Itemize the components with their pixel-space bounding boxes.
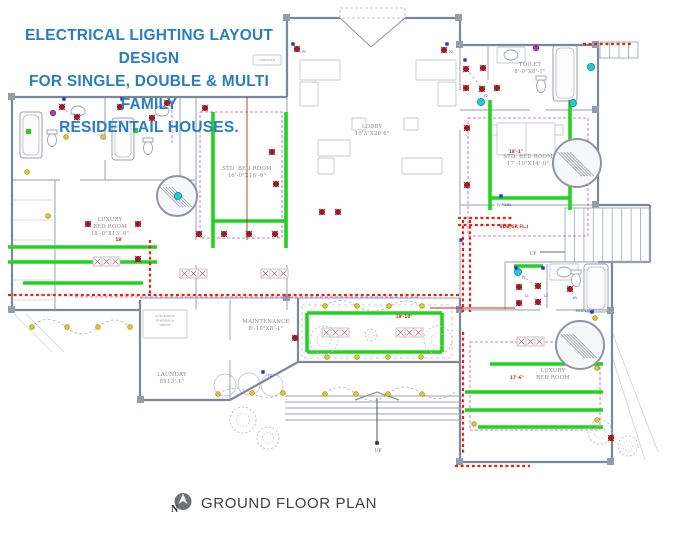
small-label: STACKABLE [155, 314, 175, 318]
ceiling-light [319, 209, 324, 214]
exhaust-fan [569, 99, 576, 106]
garden-light [128, 325, 133, 330]
wiring-curve [466, 69, 483, 89]
plant [365, 329, 377, 341]
garden-light [420, 392, 425, 397]
garden-light [65, 325, 70, 330]
room-label: BED ROOM [536, 375, 570, 381]
ceiling-fan [556, 321, 604, 369]
bathtub [553, 45, 577, 101]
title-line-2: FOR SINGLE, DOUBLE & MULTI FAMILY [0, 70, 298, 116]
circuit-tag: WL [573, 296, 578, 300]
furniture [318, 158, 334, 174]
plant [257, 427, 279, 449]
room-label: 19'3"X20'4" [355, 131, 390, 137]
circuit-tag: L1 [525, 294, 529, 298]
garden-light [386, 392, 391, 397]
plant-inner [237, 414, 250, 427]
wall-pillar [592, 106, 599, 113]
circuit-tag: F4 [268, 374, 272, 378]
circuit-tag: P2 [449, 50, 453, 54]
dimension-label: 18'-1" [509, 149, 523, 154]
screenshot-canvas: LUXURYBED ROOM18'-0"X13'-0"STD. BED ROOM… [0, 0, 680, 533]
garden-light [420, 304, 425, 309]
garden-light [595, 366, 600, 371]
garden-light [354, 392, 359, 397]
wall-pillar [607, 458, 614, 465]
ceiling-light [335, 209, 340, 214]
garden-light [355, 355, 360, 360]
switch [514, 266, 517, 269]
room-label: LUXURY [541, 368, 566, 374]
exhaust-fan [174, 192, 181, 199]
room-label: 17'-10"X14'-0" [507, 161, 549, 167]
circuit-tag: L2 [544, 294, 548, 298]
room-label: 16'-0"X16'-6" [228, 173, 267, 179]
small-label: DRYER [159, 323, 171, 327]
ceiling-light [464, 125, 469, 130]
room-label: STD. BED ROOM [222, 166, 272, 172]
room-label: 8X13'-1" [160, 379, 185, 385]
bathtub [584, 264, 608, 312]
wall-pillar [137, 396, 144, 403]
ceiling-light [135, 256, 140, 261]
garden-light [323, 304, 328, 309]
wall-pillar [456, 41, 463, 48]
sink [504, 50, 518, 60]
garden-light [325, 355, 330, 360]
furniture [300, 82, 318, 106]
staircase [565, 208, 650, 262]
room-label: LUXURY [98, 217, 123, 223]
wall-pillar [592, 201, 599, 208]
switch [459, 238, 462, 241]
garden-light [46, 214, 51, 219]
entry-door-swing [371, 18, 405, 47]
ceiling-light [221, 231, 226, 236]
ceiling-light [85, 221, 90, 226]
ceiling-light [535, 283, 540, 288]
ceiling-light [479, 86, 484, 91]
up-arrow-base [375, 441, 379, 445]
ceiling-light [196, 231, 201, 236]
toilet [537, 80, 546, 93]
switch [463, 58, 466, 61]
title-line-3: RESIDENTAIL HOUSES. [0, 116, 298, 139]
wall-pillar [455, 14, 462, 21]
ceiling-light [464, 182, 469, 187]
garden-light [593, 316, 598, 321]
switch [445, 42, 448, 45]
toilet-tank [571, 270, 581, 274]
wall-pillar [283, 14, 290, 21]
garden-light [25, 170, 30, 175]
ceiling-light [463, 66, 468, 71]
ceiling-light [269, 149, 274, 154]
circuit-tag: ROSE LIGHT [576, 309, 595, 313]
ceiling-light [292, 335, 297, 340]
room-label: TOILET [519, 62, 542, 68]
ceiling-light [516, 300, 521, 305]
wall-pillar [8, 306, 15, 313]
circuit-tag: TV PANEL [496, 203, 512, 207]
room-label: 8'-10"X8'-1" [249, 326, 284, 332]
up-label: UP [530, 251, 537, 257]
small-label: WASHER & [156, 319, 175, 323]
garden-light [595, 418, 600, 423]
room-label: 18'-0"X13'-0" [91, 231, 130, 237]
dimension-label: SDB(GR FL.) [500, 224, 529, 229]
toilet-tank [536, 76, 546, 80]
ceiling-light [463, 85, 468, 90]
toilet [572, 274, 581, 287]
room-label: BED ROOM [93, 224, 127, 230]
garden-light [323, 392, 328, 397]
furniture [318, 140, 350, 156]
garden-light [30, 325, 35, 330]
ceiling-light [273, 181, 278, 186]
furniture [416, 60, 456, 80]
furniture [300, 60, 340, 80]
ceiling-fan [553, 139, 601, 187]
ceiling-light [516, 284, 521, 289]
page-title: ELECTRICAL LIGHTING LAYOUT DESIGN FOR SI… [0, 24, 298, 139]
small-label: CABINET [37, 293, 53, 297]
garden-light [472, 422, 477, 427]
furniture [555, 125, 563, 135]
svg-text:N: N [171, 504, 179, 515]
garden-light [216, 392, 221, 397]
wiring-curve [30, 320, 130, 335]
garden-light [250, 391, 255, 396]
circuit-tag: F1 [522, 276, 526, 280]
wall-pillar [607, 307, 614, 314]
ceiling-light [480, 65, 485, 70]
shelf-line [14, 314, 52, 352]
ceiling-light [494, 85, 499, 90]
room-label: LOBBY [362, 124, 383, 130]
garden-light [281, 391, 286, 396]
circuit-tag: P1 [302, 50, 306, 54]
plant [424, 326, 452, 354]
plant-inner [368, 332, 374, 338]
wall-pillar [456, 458, 463, 465]
ceiling-light [272, 231, 277, 236]
garden-light [386, 355, 391, 360]
room-label: 8'-0"X6'-1" [514, 69, 545, 75]
entry-door-header [340, 8, 405, 18]
shelf-line [612, 332, 658, 452]
plan-caption: N GROUND FLOOR PLAN [170, 491, 377, 515]
garden-light [387, 304, 392, 309]
ceiling-light [535, 299, 540, 304]
garden-light [355, 304, 360, 309]
ceiling-light [441, 47, 446, 52]
furniture [404, 118, 418, 130]
garden-light [419, 355, 424, 360]
dimension-label: 18'-10" [396, 314, 413, 319]
switch [541, 266, 544, 269]
ceiling-light [567, 286, 572, 291]
switch [499, 194, 502, 197]
dimension-label: 17'-6" [510, 375, 524, 380]
ceiling-light [135, 221, 140, 226]
wiring-curve [325, 301, 422, 312]
plant [618, 436, 638, 456]
shelf-line [612, 356, 645, 460]
north-compass-icon: N [170, 491, 194, 515]
up-label: UP [375, 448, 382, 454]
sink [557, 267, 571, 277]
exterior-wall [230, 362, 298, 400]
entry-door-swing [340, 18, 371, 47]
plan-caption-label: GROUND FLOOR PLAN [201, 495, 377, 512]
circuit-tag: F2 [484, 94, 488, 98]
ceiling-light [246, 231, 251, 236]
furniture [438, 82, 456, 106]
exhaust-fan [587, 63, 594, 70]
plant-inner [623, 441, 633, 451]
switch [261, 370, 264, 373]
plant-inner [263, 433, 274, 444]
room-label: LAUNDRY [157, 372, 187, 378]
toilet [144, 142, 153, 155]
special-light [533, 45, 539, 51]
dimension-label: 18' [115, 237, 122, 242]
room-label: MAINTENANCE [242, 319, 289, 325]
room-label: STD. BED ROOM [503, 154, 553, 160]
ceiling-light [608, 435, 613, 440]
title-line-1: ELECTRICAL LIGHTING LAYOUT DESIGN [0, 24, 298, 70]
exhaust-fan [477, 98, 484, 105]
garden-light [96, 325, 101, 330]
furniture [402, 158, 442, 174]
plant [230, 407, 256, 433]
